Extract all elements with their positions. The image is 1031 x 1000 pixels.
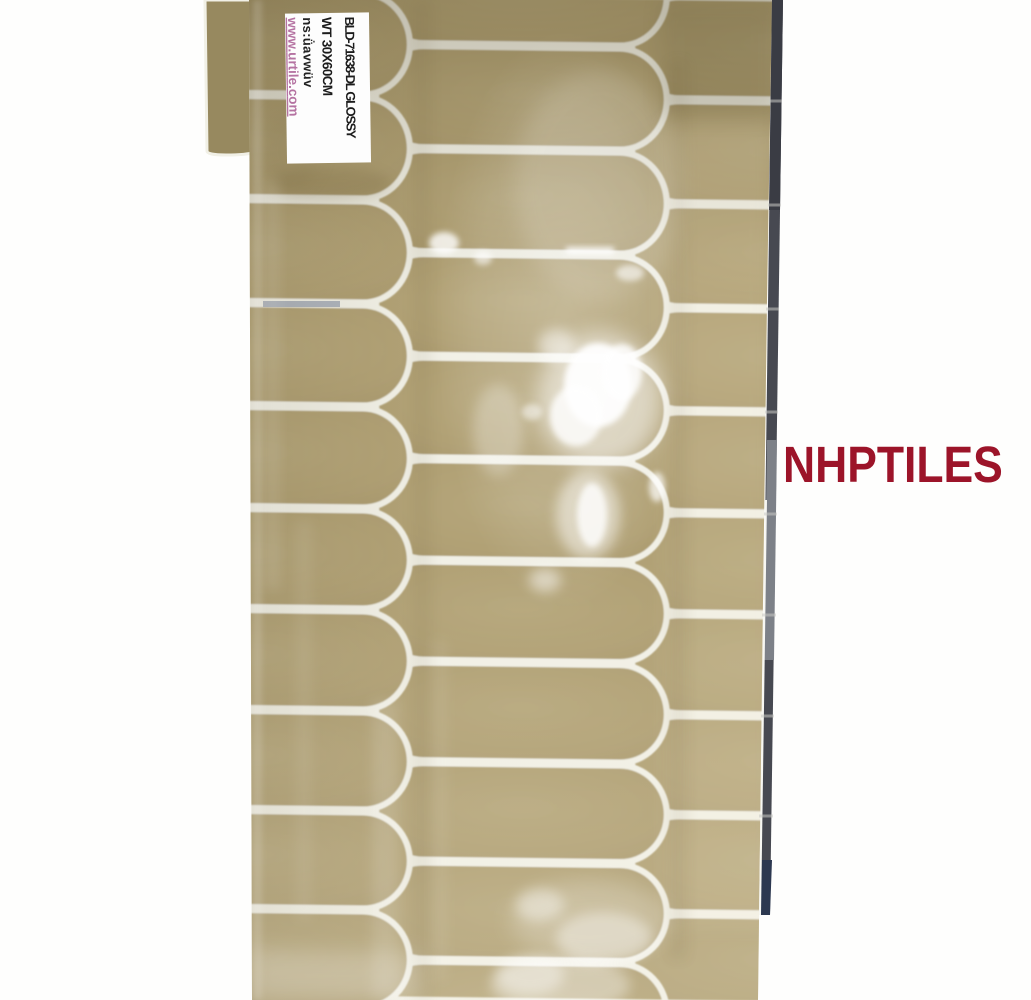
svg-text:ns:ü̇avwüv: ns:ü̇avwüv: [300, 17, 316, 88]
svg-text:NHPTILES: NHPTILES: [783, 437, 1003, 493]
svg-text:WT 30X60CM: WT 30X60CM: [319, 17, 335, 96]
svg-text:www.urtile.com: www.urtile.com: [285, 16, 301, 116]
svg-text:BLD-71638-DL GLOSSY: BLD-71638-DL GLOSSY: [342, 17, 359, 140]
